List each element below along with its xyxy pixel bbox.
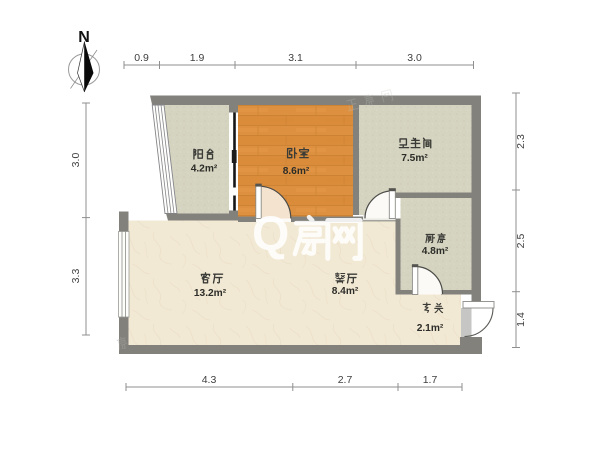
- svg-text:3.0: 3.0: [407, 52, 422, 64]
- svg-text:3.3: 3.3: [70, 269, 82, 284]
- svg-text:4.8m²: 4.8m²: [422, 246, 449, 257]
- svg-text:8.4m²: 8.4m²: [332, 286, 359, 297]
- svg-text:3.1: 3.1: [288, 52, 303, 64]
- svg-text:2.1m²: 2.1m²: [417, 323, 444, 334]
- svg-text:7.5m²: 7.5m²: [401, 153, 428, 164]
- svg-text:4.3: 4.3: [202, 374, 217, 386]
- svg-text:8.6m²: 8.6m²: [283, 166, 310, 177]
- svg-text:2.7: 2.7: [338, 374, 353, 386]
- svg-text:1.7: 1.7: [423, 374, 438, 386]
- svg-text:4.2m²: 4.2m²: [191, 164, 218, 175]
- svg-text:Q: Q: [252, 208, 289, 261]
- svg-text:1.9: 1.9: [190, 52, 205, 64]
- svg-text:3.0: 3.0: [70, 153, 82, 168]
- svg-text:13.2m²: 13.2m²: [194, 288, 227, 299]
- svg-text:1.4: 1.4: [515, 312, 527, 327]
- svg-text:0.9: 0.9: [134, 52, 149, 64]
- svg-text:2.5: 2.5: [515, 234, 527, 249]
- svg-text:2.3: 2.3: [515, 134, 527, 149]
